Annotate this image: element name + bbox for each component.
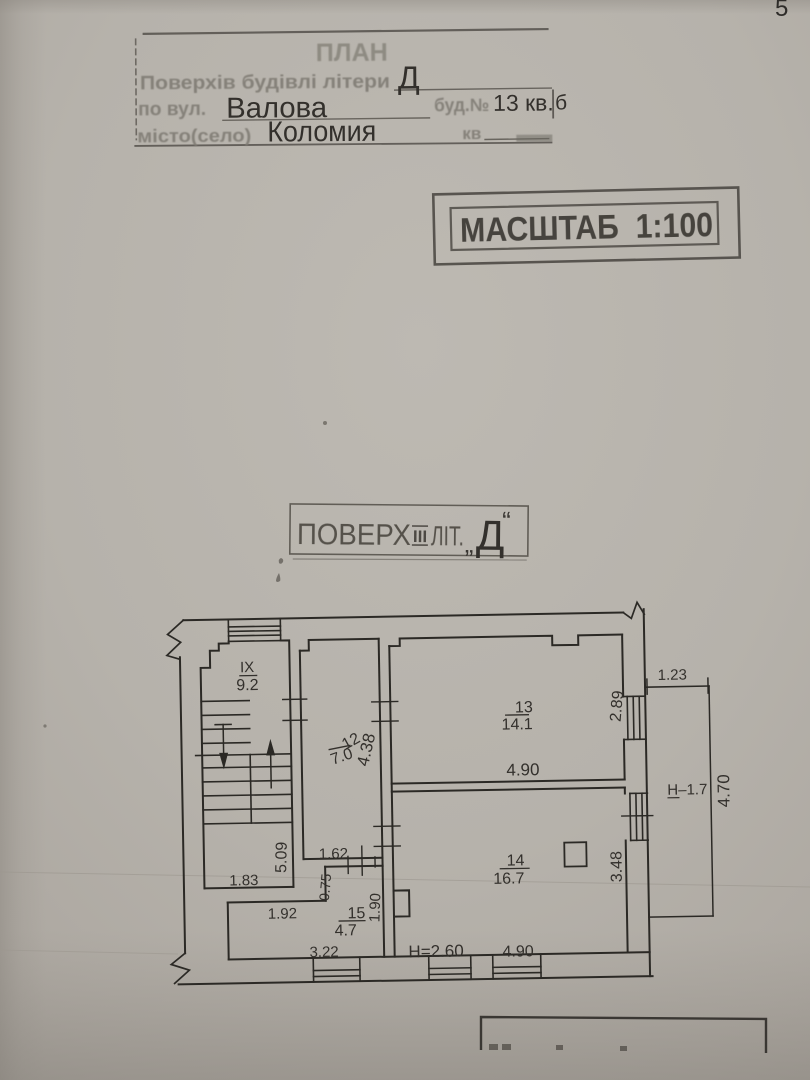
svg-text:16.7: 16.7 — [493, 870, 525, 888]
svg-text:Поверхів будівлі літери: Поверхів будівлі літери — [140, 72, 390, 95]
svg-text:2.89: 2.89 — [608, 690, 628, 723]
svg-text:4.70: 4.70 — [714, 774, 734, 807]
svg-text:3.48: 3.48 — [608, 851, 626, 883]
svg-text:ПОВЕРХ: ПОВЕРХ — [297, 518, 411, 552]
svg-text:місто(село): місто(село) — [137, 126, 251, 147]
svg-text:IX: IX — [240, 659, 254, 676]
svg-text:ПЛАН: ПЛАН — [316, 39, 388, 68]
svg-text:1.83: 1.83 — [229, 872, 258, 890]
svg-text:Коломия: Коломия — [267, 116, 376, 149]
svg-text:14: 14 — [507, 852, 525, 869]
svg-text:13: 13 — [515, 699, 533, 716]
svg-text:9.2: 9.2 — [236, 677, 259, 694]
svg-text:кв: кв — [462, 124, 481, 143]
svg-text:3.22: 3.22 — [309, 944, 338, 962]
svg-text:15: 15 — [347, 905, 365, 922]
svg-text:1.62: 1.62 — [319, 845, 348, 863]
svg-text:Д: Д — [476, 512, 505, 559]
svg-text:0.75: 0.75 — [316, 873, 334, 902]
svg-text:4.90: 4.90 — [502, 943, 534, 961]
svg-text:МАСШТАБ 1:100: МАСШТАБ 1:100 — [460, 206, 714, 250]
svg-text:б: б — [555, 91, 567, 114]
svg-text:13 кв.: 13 кв. — [493, 90, 554, 116]
svg-text:1.90: 1.90 — [366, 893, 384, 923]
svg-text:1.23: 1.23 — [658, 666, 687, 684]
svg-text:Д: Д — [398, 59, 420, 95]
svg-text:“: “ — [502, 506, 511, 536]
svg-text:Н=2.60: Н=2.60 — [408, 941, 464, 961]
svg-text:ЛІТ.: ЛІТ. — [431, 520, 464, 551]
svg-text:5.09: 5.09 — [273, 842, 291, 874]
svg-text:по вул.: по вул. — [138, 99, 206, 120]
svg-text:Н–1.7: Н–1.7 — [667, 781, 707, 799]
svg-text:„: „ — [465, 528, 474, 558]
svg-text:4.7: 4.7 — [334, 922, 357, 939]
svg-text:1.92: 1.92 — [268, 905, 297, 923]
svg-text:14.1: 14.1 — [501, 716, 533, 734]
svg-text:буд.№: буд.№ — [434, 95, 489, 115]
svg-text:4.90: 4.90 — [506, 760, 539, 780]
svg-text:5: 5 — [775, 0, 788, 22]
svg-text:III: III — [413, 527, 427, 546]
